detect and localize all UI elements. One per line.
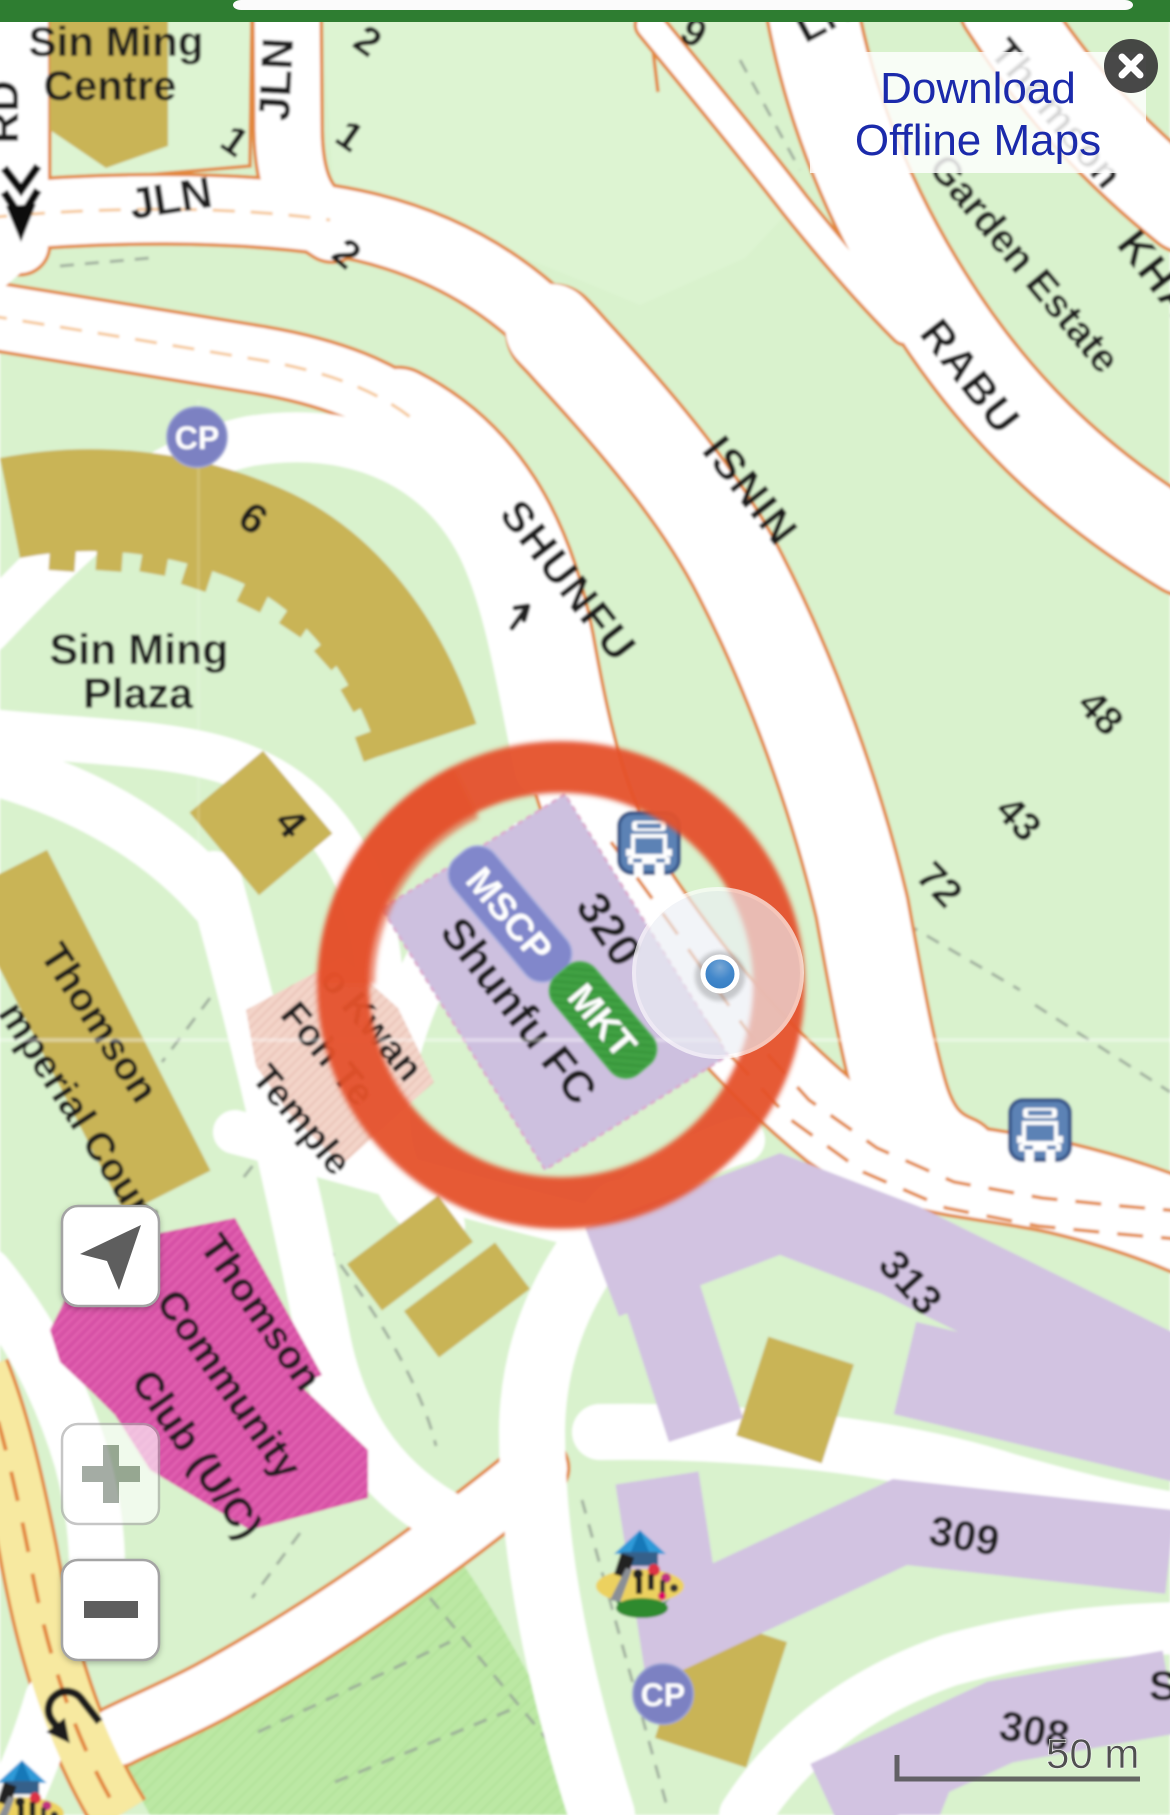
svg-text:Download: Download — [880, 64, 1076, 113]
svg-text:RD: RD — [0, 80, 28, 144]
svg-text:CP: CP — [641, 1677, 685, 1713]
svg-text:50 m: 50 m — [1046, 1730, 1139, 1777]
svg-text:Centre: Centre — [43, 62, 176, 109]
svg-text:Sin Ming: Sin Ming — [49, 626, 228, 674]
svg-text:Sin Ming: Sin Ming — [29, 18, 204, 65]
svg-text:JLN: JLN — [250, 36, 303, 122]
svg-text:Offline Maps: Offline Maps — [855, 116, 1101, 165]
svg-text:S: S — [1149, 1662, 1170, 1709]
svg-text:CP: CP — [175, 420, 219, 456]
svg-text:Plaza: Plaza — [83, 670, 194, 718]
